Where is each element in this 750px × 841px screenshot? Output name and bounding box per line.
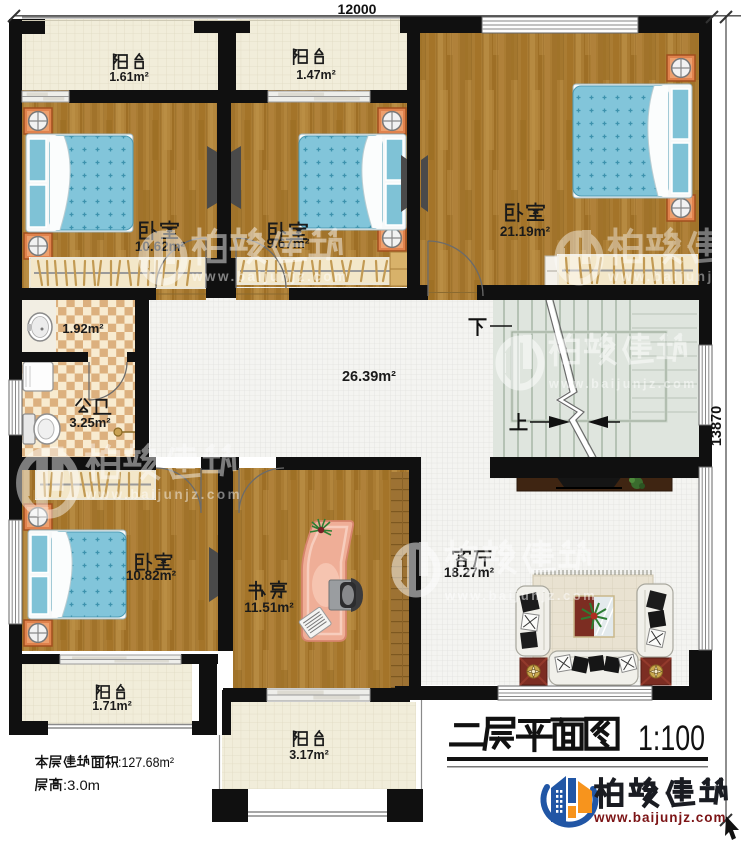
svg-text:1.71m²: 1.71m²	[92, 699, 132, 713]
svg-text:11.51m²: 11.51m²	[244, 600, 294, 615]
svg-text:3.25m²: 3.25m²	[69, 415, 111, 430]
svg-text::3.0m: :3.0m	[63, 778, 100, 793]
svg-text:www.baijunjz.com: www.baijunjz.com	[444, 588, 597, 603]
svg-text:1:100: 1:100	[638, 719, 705, 758]
svg-text:www.baijunjz.com: www.baijunjz.com	[593, 810, 727, 825]
svg-text:www.baijunjz.com: www.baijunjz.com	[607, 269, 750, 284]
svg-text:21.19m²: 21.19m²	[500, 224, 551, 239]
svg-text:1.92m²: 1.92m²	[62, 321, 104, 336]
svg-text:www.baijunjz.com: www.baijunjz.com	[191, 269, 349, 284]
svg-text:www.baijunjz.com: www.baijunjz.com	[548, 377, 697, 391]
svg-text::127.68m²: :127.68m²	[118, 755, 174, 770]
svg-text:1.47m²: 1.47m²	[296, 68, 336, 82]
svg-text:13870: 13870	[709, 406, 725, 446]
svg-text:www.baijunjz.com: www.baijunjz.com	[85, 487, 243, 502]
svg-text:12000: 12000	[338, 1, 377, 17]
svg-text:3.17m²: 3.17m²	[289, 748, 329, 762]
svg-text:1.61m²: 1.61m²	[109, 70, 149, 84]
svg-text:10.82m²: 10.82m²	[126, 568, 177, 583]
svg-text:26.39m²: 26.39m²	[342, 369, 396, 385]
